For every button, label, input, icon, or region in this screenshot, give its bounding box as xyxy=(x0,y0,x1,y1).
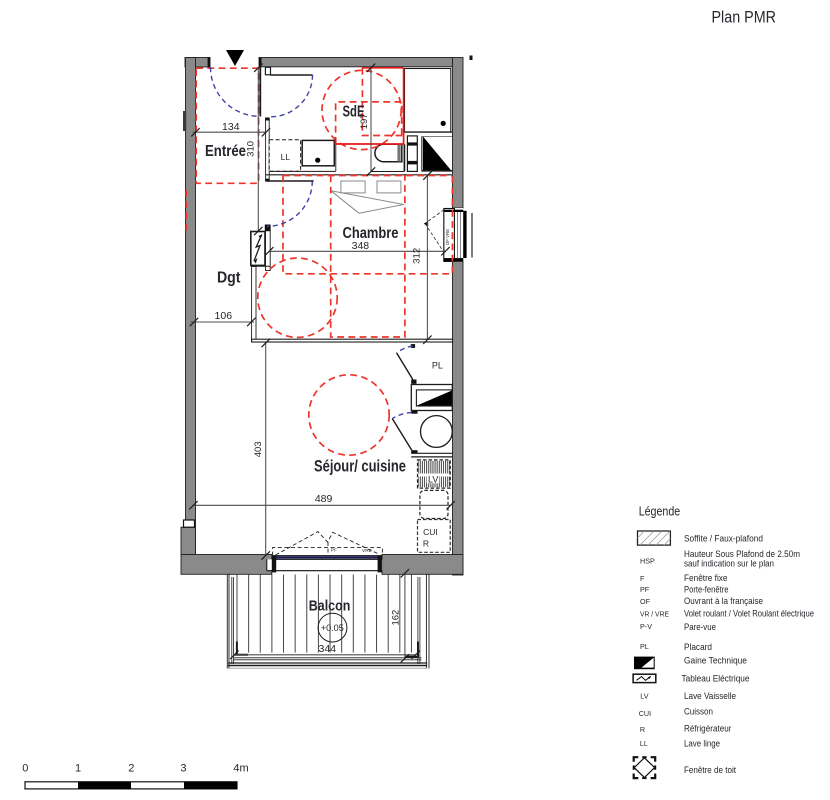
svg-text:R: R xyxy=(423,538,429,548)
svg-text:PF: PF xyxy=(331,548,337,554)
svg-text:sauf indication sur le plan: sauf indication sur le plan xyxy=(684,559,774,569)
svg-text:344: 344 xyxy=(319,643,337,655)
svg-text:Volet roulant / Volet Roulant: Volet roulant / Volet Roulant électrique xyxy=(684,608,814,618)
svg-text:Porte-fenêtre: Porte-fenêtre xyxy=(684,584,729,594)
svg-text:+0.05: +0.05 xyxy=(321,623,344,633)
svg-text:VRE: VRE xyxy=(362,548,372,554)
svg-text:F: F xyxy=(640,574,645,583)
svg-text:3: 3 xyxy=(180,763,186,775)
svg-text:310: 310 xyxy=(245,141,256,157)
svg-text:Ouvrant à la française: Ouvrant à la française xyxy=(684,596,763,606)
svg-text:P-V: P-V xyxy=(640,622,652,631)
svg-text:R: R xyxy=(640,725,645,734)
svg-text:OF VRE: OF VRE xyxy=(445,229,450,245)
svg-text:LL: LL xyxy=(640,739,648,748)
svg-text:Fenêtre de toit: Fenêtre de toit xyxy=(684,765,737,775)
svg-text:Balcon: Balcon xyxy=(309,597,351,614)
svg-text:4m: 4m xyxy=(233,763,248,775)
svg-text:Lave linge: Lave linge xyxy=(684,739,720,749)
svg-text:PL: PL xyxy=(640,642,649,651)
svg-text:Réfrigérateur: Réfrigérateur xyxy=(684,724,732,734)
svg-text:CUI: CUI xyxy=(639,709,651,718)
svg-text:LL: LL xyxy=(281,152,291,162)
svg-text:OF: OF xyxy=(640,597,651,606)
svg-text:Légende: Légende xyxy=(639,504,681,519)
svg-text:Fenêtre fixe: Fenêtre fixe xyxy=(684,573,728,583)
svg-text:1: 1 xyxy=(75,763,81,775)
svg-text:HSP: HSP xyxy=(640,556,655,565)
svg-text:Hauteur Sous Plafond de 2.50m: Hauteur Sous Plafond de 2.50m xyxy=(684,549,800,559)
svg-text:Séjour/ cuisine: Séjour/ cuisine xyxy=(314,458,406,476)
svg-text:403: 403 xyxy=(253,441,264,457)
svg-text:312: 312 xyxy=(412,248,423,264)
svg-text:Soffite / Faux-plafond: Soffite / Faux-plafond xyxy=(684,534,763,544)
svg-text:PF: PF xyxy=(640,585,650,594)
svg-text:Chambre: Chambre xyxy=(343,225,399,242)
svg-text:Cuisson: Cuisson xyxy=(684,707,713,717)
svg-text:Lave Vaisselle: Lave Vaisselle xyxy=(684,691,736,701)
svg-text:162: 162 xyxy=(391,610,402,626)
svg-text:Entrée: Entrée xyxy=(205,143,246,160)
svg-text:489: 489 xyxy=(315,493,333,505)
svg-text:Dgt: Dgt xyxy=(217,270,241,287)
svg-text:LV: LV xyxy=(640,692,648,701)
svg-text:SdE: SdE xyxy=(343,104,365,121)
svg-text:0: 0 xyxy=(22,763,28,775)
svg-text:Placard: Placard xyxy=(684,642,712,652)
svg-text:Plan PMR: Plan PMR xyxy=(712,9,777,27)
svg-text:LV: LV xyxy=(428,474,438,484)
svg-text:2: 2 xyxy=(128,763,134,775)
svg-text:CUI: CUI xyxy=(423,527,438,537)
svg-text:Pare-vue: Pare-vue xyxy=(684,622,716,632)
svg-text:PL: PL xyxy=(432,360,443,370)
svg-text:Tableau Eléctrique: Tableau Eléctrique xyxy=(682,674,750,684)
svg-text:Gaine Technique: Gaine Technique xyxy=(684,655,747,665)
svg-text:348: 348 xyxy=(352,240,370,252)
svg-text:134: 134 xyxy=(222,121,240,133)
svg-text:VR / VRE: VR / VRE xyxy=(640,609,669,618)
svg-text:106: 106 xyxy=(215,310,233,322)
